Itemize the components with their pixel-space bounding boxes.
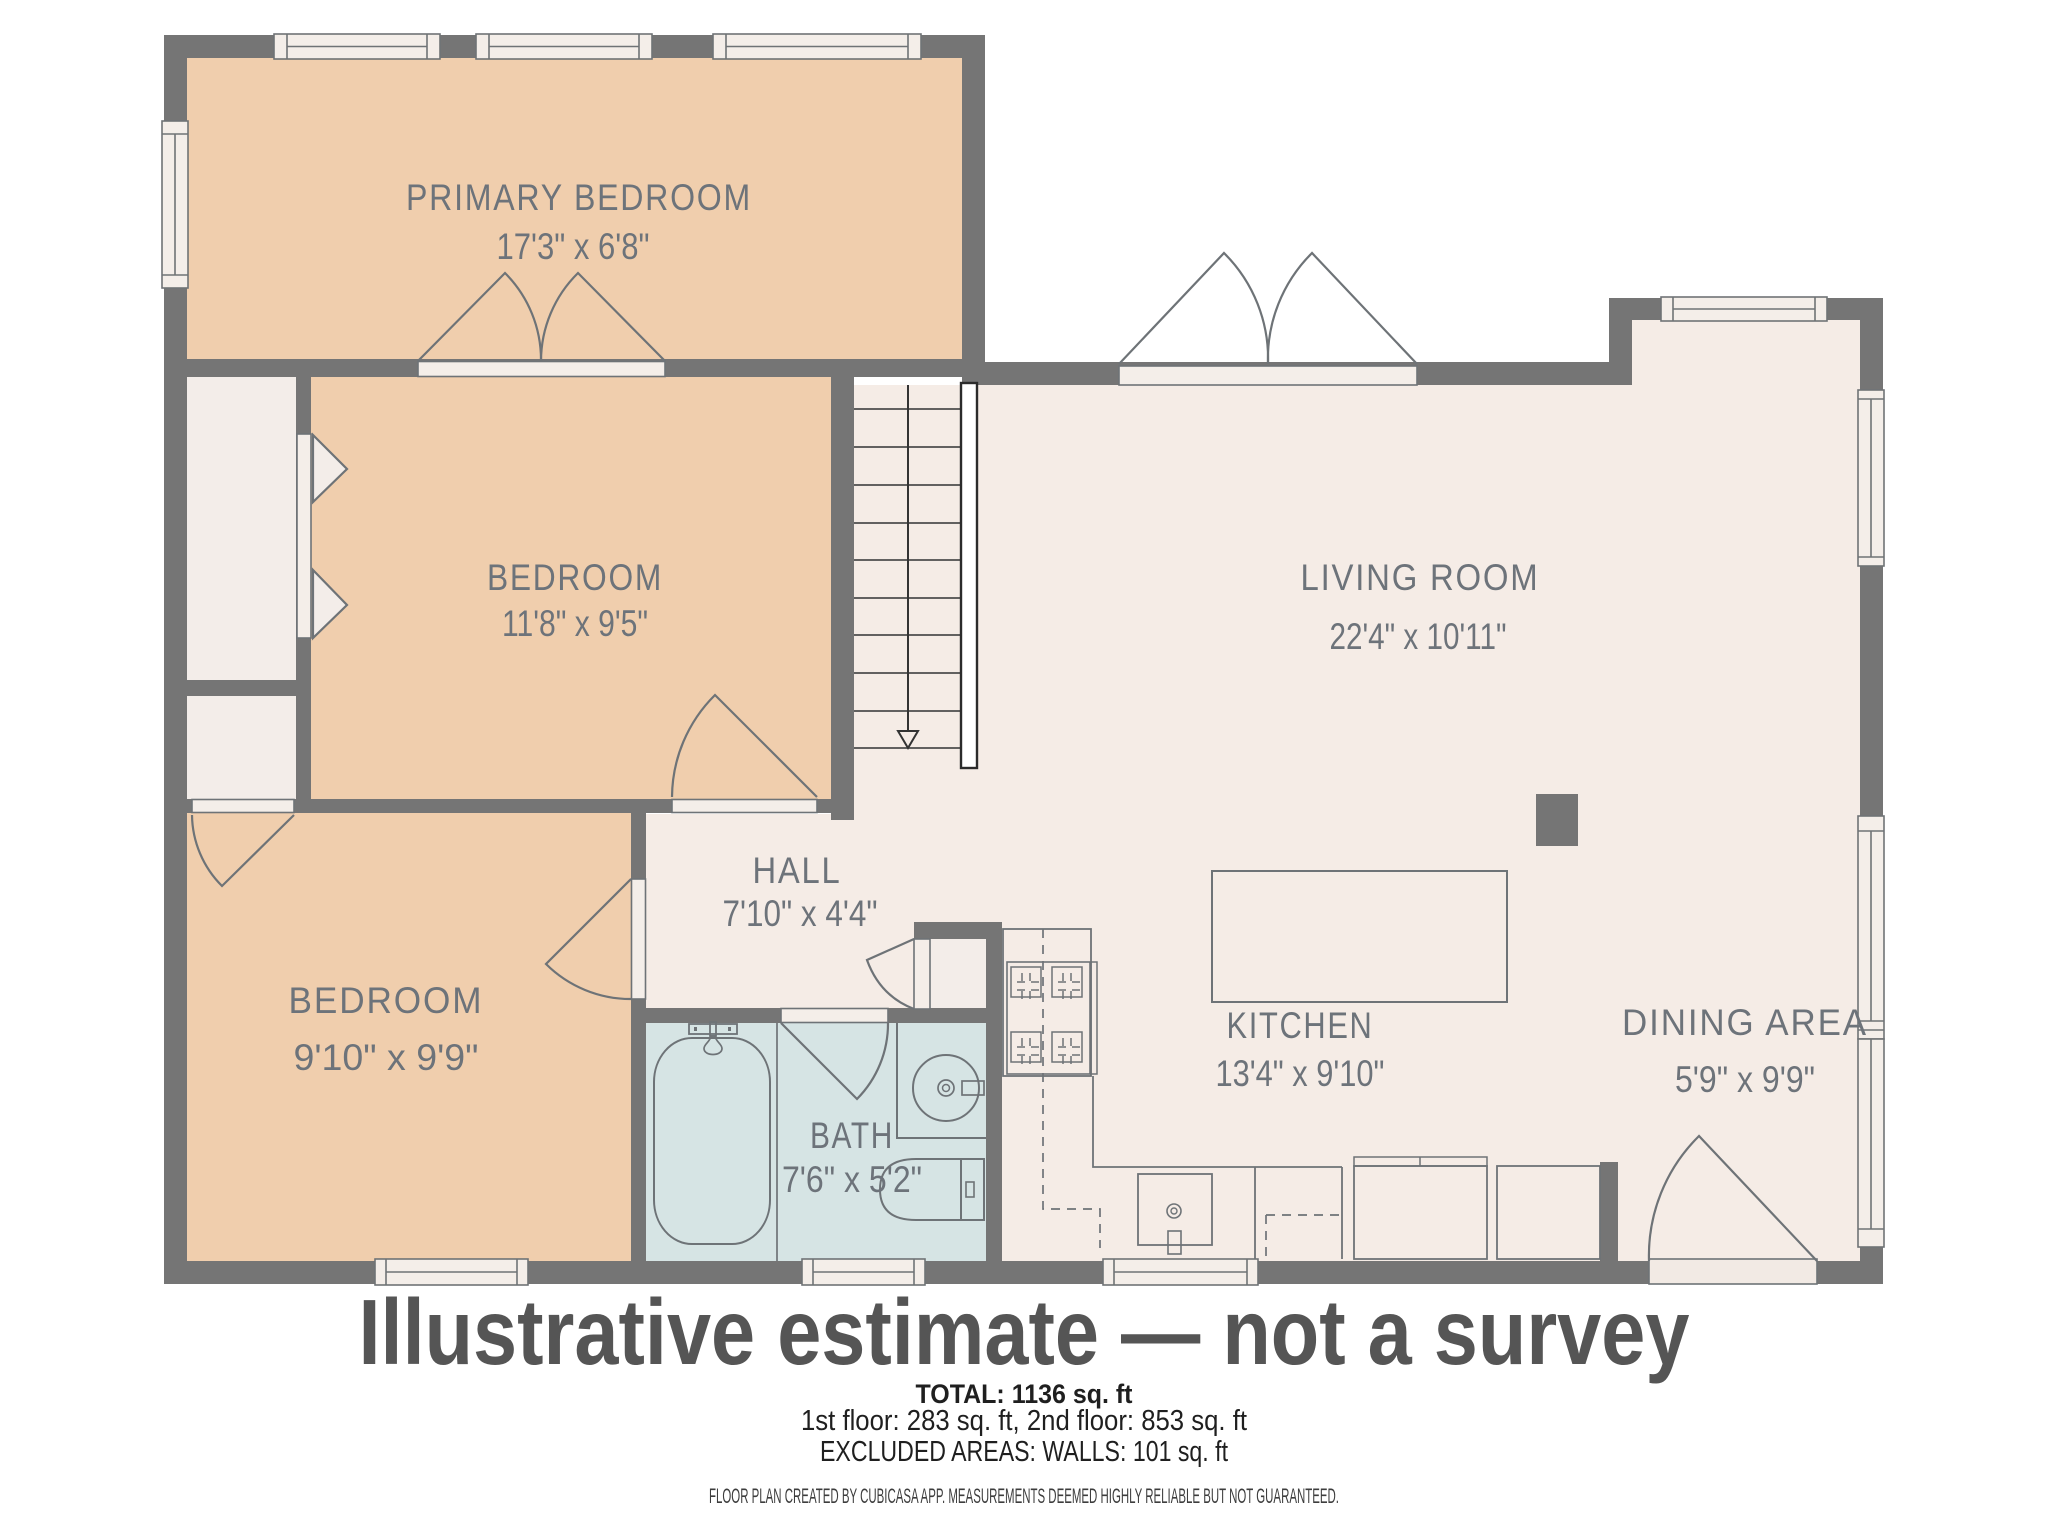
svg-text:BEDROOM: BEDROOM: [487, 557, 663, 598]
svg-text:17'3" x 6'8": 17'3" x 6'8": [497, 226, 650, 267]
svg-text:EXCLUDED AREAS: WALLS: 101 sq.: EXCLUDED AREAS: WALLS: 101 sq. ft: [820, 1436, 1228, 1468]
svg-text:9'10" x 9'9": 9'10" x 9'9": [294, 1037, 479, 1078]
svg-text:LIVING ROOM: LIVING ROOM: [1301, 557, 1540, 598]
svg-text:Illustrative estimate — not a: Illustrative estimate — not a survey: [359, 1280, 1690, 1384]
svg-text:5'9" x 9'9": 5'9" x 9'9": [1675, 1059, 1815, 1100]
svg-text:HALL: HALL: [753, 850, 842, 891]
svg-text:KITCHEN: KITCHEN: [1227, 1005, 1374, 1046]
svg-text:PRIMARY BEDROOM: PRIMARY BEDROOM: [406, 177, 752, 218]
svg-text:22'4" x 10'11": 22'4" x 10'11": [1330, 616, 1507, 657]
svg-text:BATH: BATH: [810, 1115, 894, 1156]
svg-text:1st floor: 283 sq. ft, 2nd flo: 1st floor: 283 sq. ft, 2nd floor: 853 sq…: [801, 1405, 1247, 1437]
svg-text:DINING AREA: DINING AREA: [1622, 1002, 1868, 1043]
svg-text:7'10" x 4'4": 7'10" x 4'4": [723, 893, 878, 934]
svg-text:13'4" x 9'10": 13'4" x 9'10": [1216, 1053, 1385, 1094]
svg-text:BEDROOM: BEDROOM: [289, 980, 484, 1021]
svg-text:7'6" x 5'2": 7'6" x 5'2": [782, 1159, 922, 1200]
svg-text:FLOOR PLAN CREATED BY CUBICASA: FLOOR PLAN CREATED BY CUBICASA APP. MEAS…: [709, 1485, 1339, 1508]
svg-text:11'8" x 9'5": 11'8" x 9'5": [502, 603, 648, 644]
